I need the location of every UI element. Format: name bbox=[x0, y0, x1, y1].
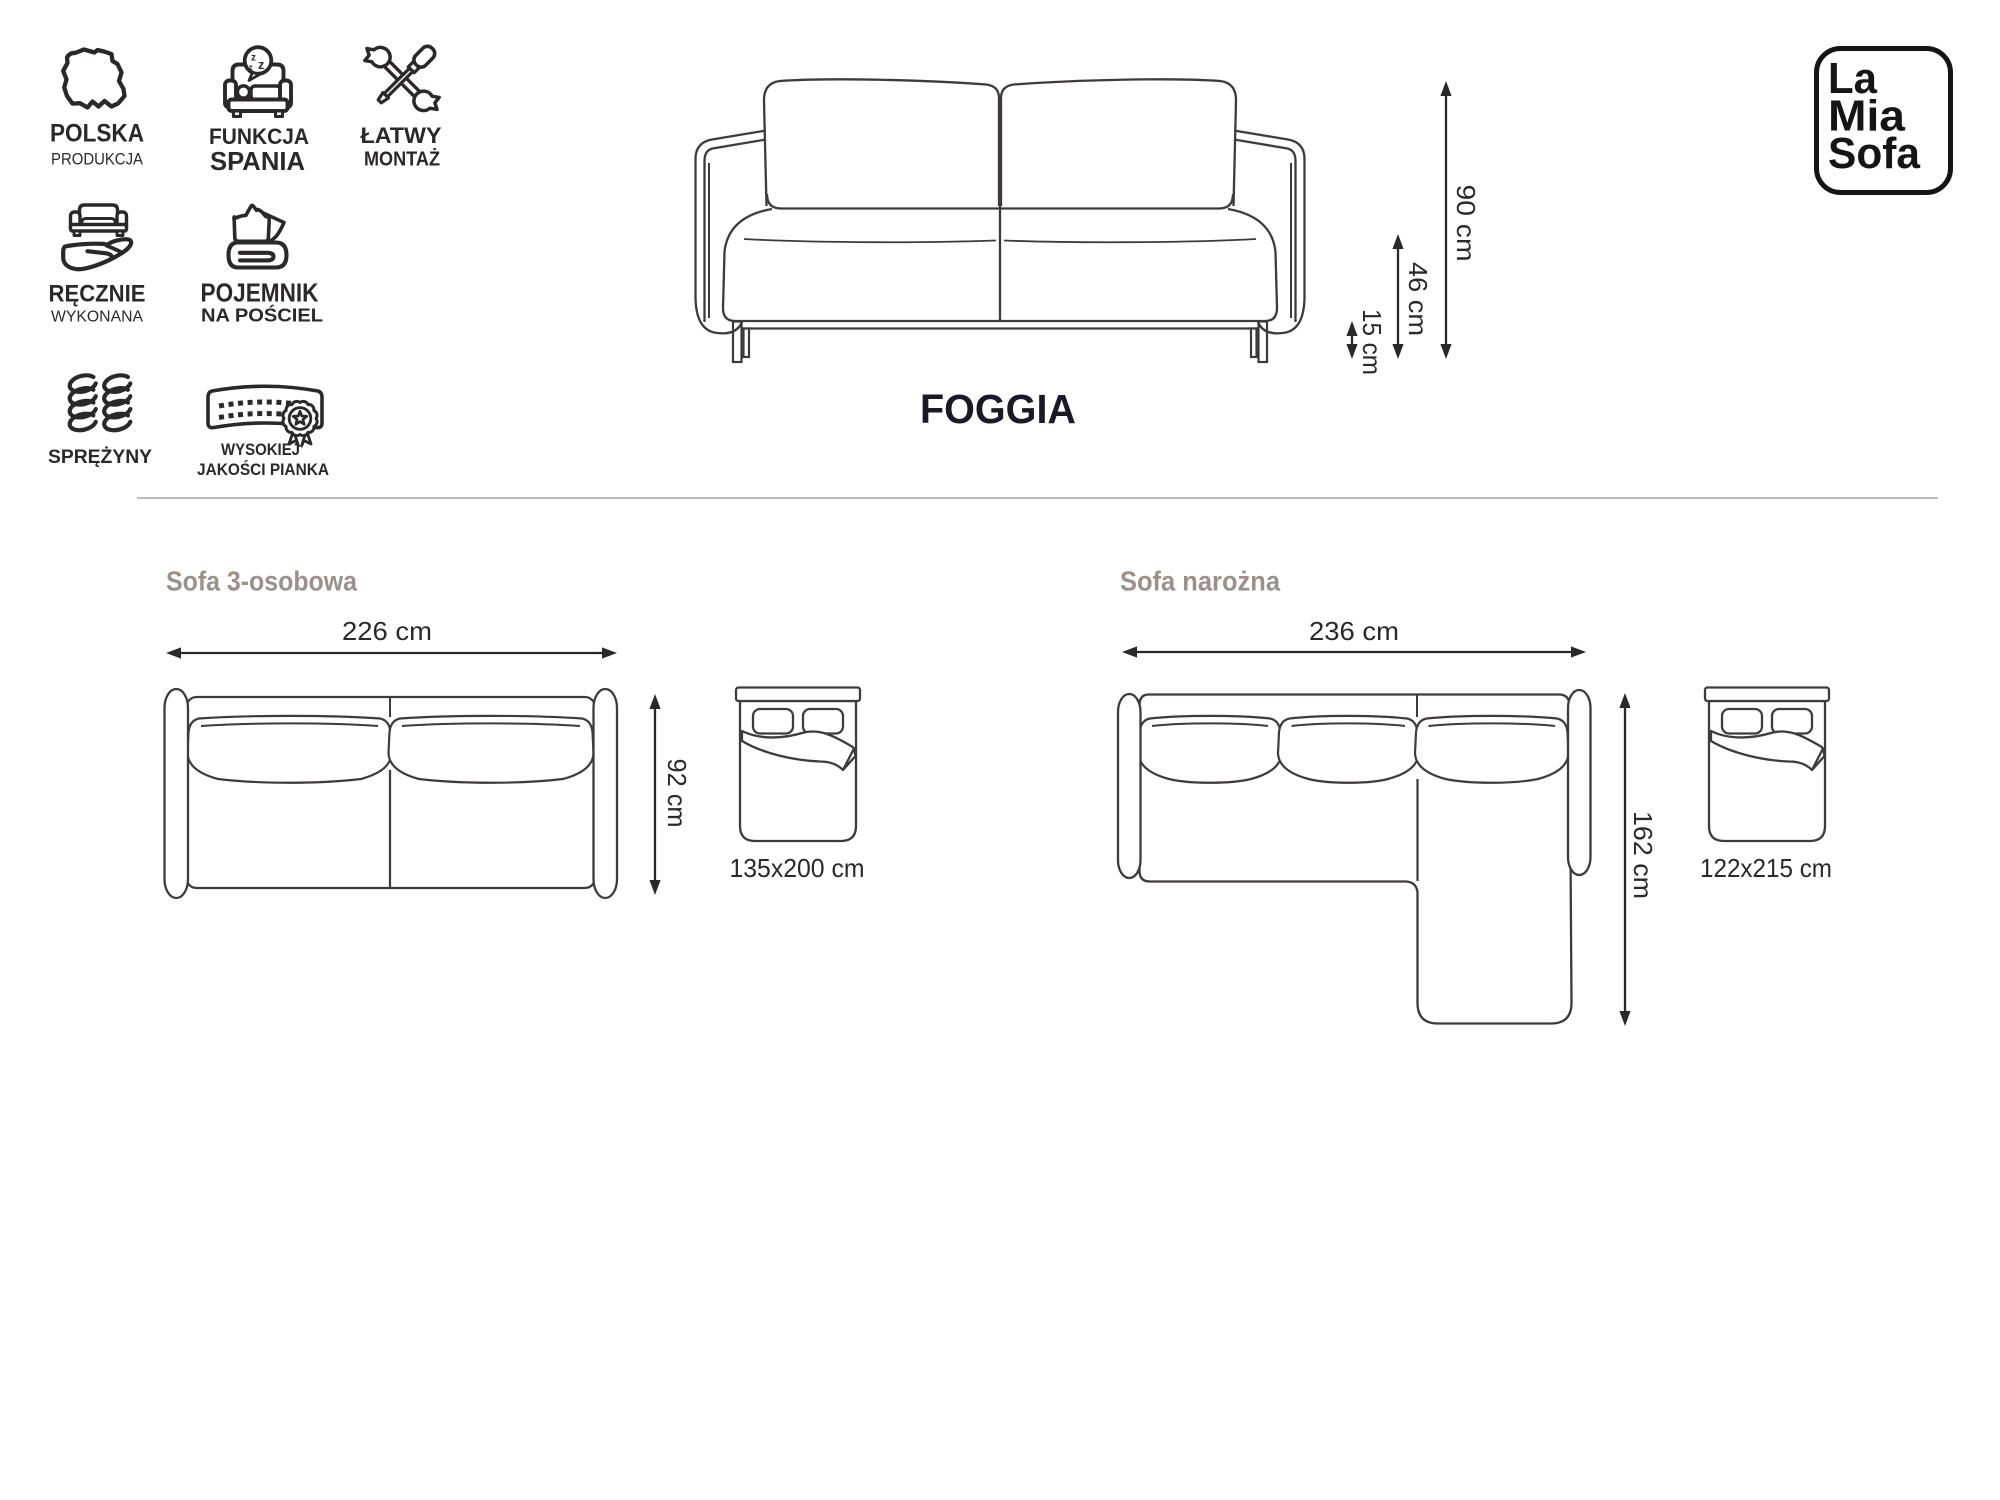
svg-text:226 cm: 226 cm bbox=[342, 616, 432, 646]
svg-text:92 cm: 92 cm bbox=[662, 759, 692, 828]
svg-text:FUNKCJA: FUNKCJA bbox=[209, 124, 309, 149]
svg-text:90 cm: 90 cm bbox=[1451, 185, 1481, 262]
svg-text:PRODUKCJA: PRODUKCJA bbox=[51, 150, 144, 169]
svg-text:SPRĘŻYNY: SPRĘŻYNY bbox=[48, 445, 152, 468]
svg-text:Sofa: Sofa bbox=[1828, 129, 1920, 178]
svg-text:z: z bbox=[249, 62, 253, 72]
svg-text:WYKONANA: WYKONANA bbox=[51, 309, 143, 326]
svg-text:Sofa 3-osobowa: Sofa 3-osobowa bbox=[166, 566, 358, 597]
svg-text:MONTAŻ: MONTAŻ bbox=[364, 148, 440, 171]
svg-text:ŁATWY: ŁATWY bbox=[361, 123, 442, 148]
svg-text:46 cm: 46 cm bbox=[1403, 262, 1433, 336]
svg-text:15 cm: 15 cm bbox=[1357, 309, 1387, 375]
svg-text:JAKOŚCI PIANKA: JAKOŚCI PIANKA bbox=[197, 460, 329, 479]
svg-text:162 cm: 162 cm bbox=[1628, 811, 1658, 899]
svg-text:FOGGIA: FOGGIA bbox=[920, 386, 1076, 432]
svg-text:135x200 cm: 135x200 cm bbox=[730, 853, 865, 883]
svg-text:WYSOKIEJ: WYSOKIEJ bbox=[221, 440, 300, 459]
svg-text:122x215 cm: 122x215 cm bbox=[1700, 853, 1832, 883]
svg-text:NA POŚCIEL: NA POŚCIEL bbox=[201, 305, 323, 326]
svg-text:z: z bbox=[258, 58, 264, 72]
svg-text:Sofa narożna: Sofa narożna bbox=[1120, 566, 1281, 597]
svg-text:POLSKA: POLSKA bbox=[50, 120, 144, 148]
svg-text:SPANIA: SPANIA bbox=[210, 148, 305, 176]
svg-text:RĘCZNIE: RĘCZNIE bbox=[49, 281, 146, 308]
svg-text:POJEMNIK: POJEMNIK bbox=[201, 280, 320, 308]
svg-text:236 cm: 236 cm bbox=[1309, 616, 1399, 646]
